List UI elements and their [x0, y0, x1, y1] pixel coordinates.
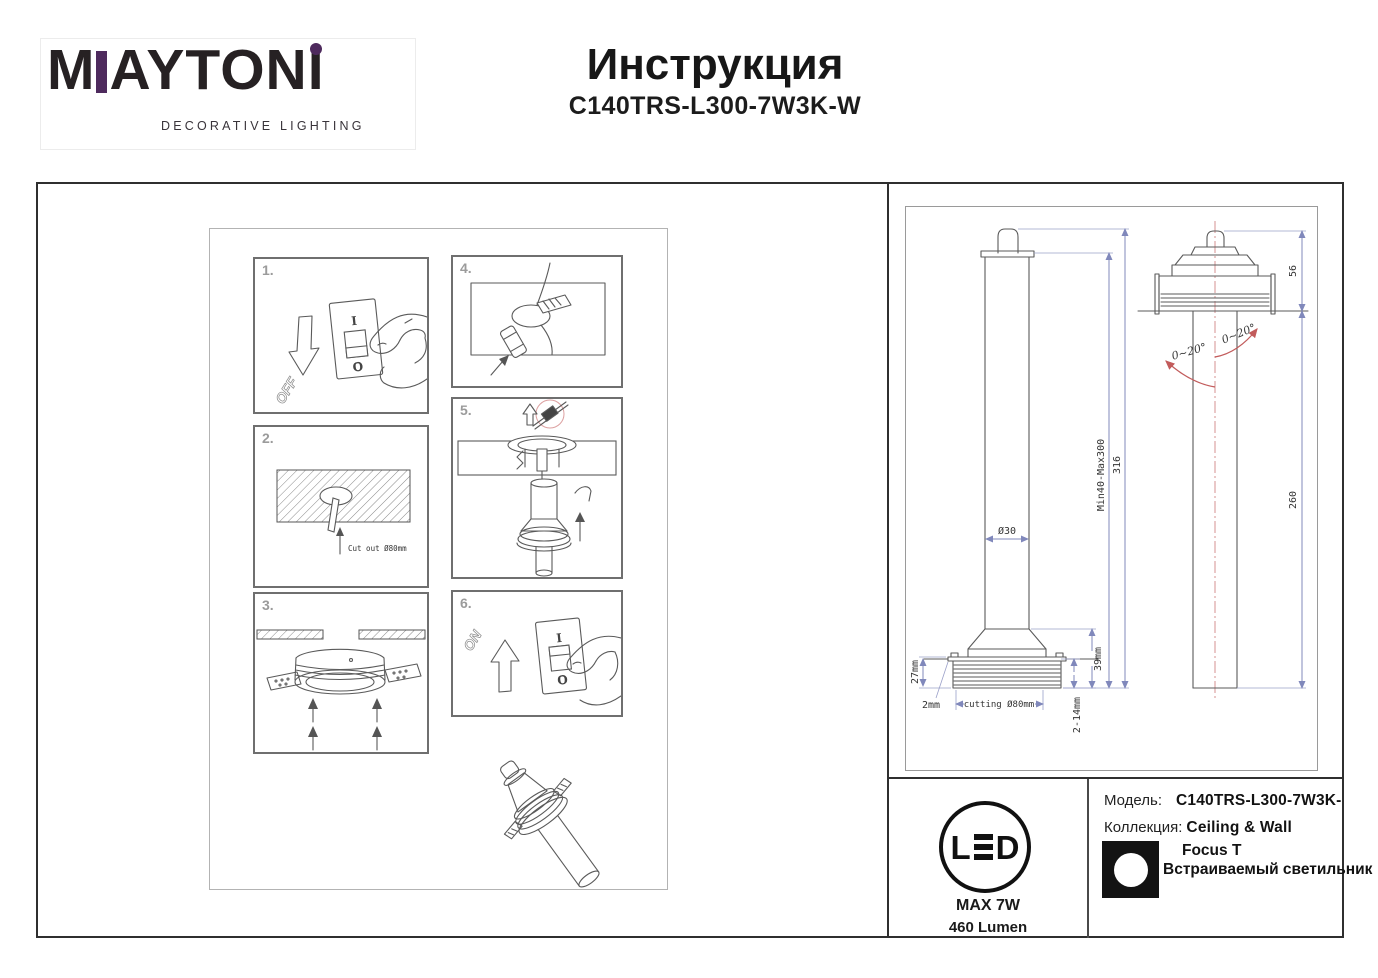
assembled-fixture-illustration: [455, 726, 620, 910]
connector: [499, 325, 527, 358]
switch-plate: I O: [329, 299, 383, 379]
logo-wordmark: MAYTONI: [47, 39, 325, 102]
collection-row: Коллекция: Ceiling & Wall: [1104, 819, 1292, 837]
spotlight-circle-icon: [1114, 853, 1148, 887]
model-label: Модель:: [1104, 792, 1162, 809]
dim-trim-label: 2mm: [922, 700, 940, 711]
cut-out-label: Cut out Ø80mm: [348, 544, 407, 553]
small-up-arrow: [523, 404, 537, 425]
max-power: MAX 7W: [890, 897, 1086, 915]
vertical-divider: [887, 182, 889, 938]
tilt-left-label: 0~20°: [1170, 340, 1208, 362]
step-5: 5.: [451, 397, 623, 579]
switch-off-mark: O: [352, 359, 364, 374]
on-label: ON: [460, 627, 485, 654]
mounting-ring: [267, 649, 421, 694]
series-name: Focus T: [1182, 842, 1241, 860]
step-6-number: 6.: [460, 595, 472, 611]
maytoni-logo: MAYTONI DECORATIVE LIGHTING: [40, 38, 416, 150]
right-horizontal-divider: [887, 777, 1344, 779]
product-icon: [1102, 841, 1159, 898]
up-arrow-head: [575, 512, 585, 522]
pointer-arrow: [491, 361, 503, 375]
lamp-body: [517, 479, 571, 576]
instruction-sheet: MAYTONI DECORATIVE LIGHTING Инструкция C…: [0, 0, 1378, 978]
technical-drawing: Ø30 27mm 2mm cutting Ø80mm 39mm: [906, 207, 1317, 770]
logo-i-dotted: I: [308, 39, 325, 102]
technical-drawing-frame: Ø30 27mm 2mm cutting Ø80mm 39mm: [905, 206, 1318, 771]
off-label: OFF: [272, 374, 301, 407]
logo-m: M: [47, 39, 95, 102]
step-4: 4.: [451, 255, 623, 388]
step-5-illustration: [453, 399, 621, 577]
led-letter-d: D: [996, 831, 1020, 864]
side-view: 0~20° 0~20°: [1138, 221, 1308, 701]
step-5-number: 5.: [460, 402, 472, 418]
dim-range-label: Min40-Max300: [1096, 439, 1107, 511]
arrow-up-icon: [491, 640, 519, 692]
step-1-number: 1.: [262, 262, 274, 278]
ceiling-right: [359, 630, 425, 639]
dim-diameter-label: Ø30: [998, 525, 1016, 537]
page-title: Инструкция: [500, 40, 930, 90]
tilt-arc-left: [1166, 361, 1215, 387]
dim-ceiling-label: 2-14mm: [1072, 697, 1083, 733]
logo-purple-bar-icon: [96, 51, 107, 93]
model-value: C140TRS-L300-7W3K-: [1176, 792, 1342, 810]
step-3-number: 3.: [262, 597, 274, 613]
dim-above-label: 56: [1288, 265, 1299, 277]
front-view: [924, 229, 1098, 688]
switch-plate: I O: [535, 618, 586, 694]
led-badge: L D: [939, 801, 1031, 893]
side-view-dimensions: 56 260: [1224, 231, 1306, 688]
step-3-illustration: [255, 594, 427, 752]
bent-wire: [575, 487, 591, 501]
title-block: Инструкция C140TRS-L300-7W3K-W: [500, 40, 930, 121]
tilted-lamp: [472, 739, 620, 907]
push-arrows: [308, 698, 382, 750]
dim-depth-label: 27mm: [910, 660, 921, 684]
collection-value: Ceiling & Wall: [1186, 819, 1292, 837]
logo-ayton: AYTON: [109, 39, 307, 102]
tilt-right-label: 0~20°: [1220, 321, 1258, 346]
product-type: Встраиваемый светильник: [1163, 861, 1372, 879]
step-6: 6. ON I O: [451, 590, 623, 717]
step-2-number: 2.: [262, 430, 274, 446]
step-2-illustration: Cut out Ø80mm: [255, 427, 427, 586]
step-4-number: 4.: [460, 260, 472, 276]
step-1-illustration: OFF I O: [255, 259, 427, 412]
ceiling-left: [257, 630, 323, 639]
arrow-down-icon: [289, 316, 319, 375]
dim-below-label: 260: [1288, 491, 1299, 509]
step-6-illustration: ON I O: [453, 592, 621, 715]
footer-vertical-divider: [1087, 779, 1089, 938]
led-e-bars-icon: [974, 834, 993, 860]
dim-total-label: 316: [1112, 456, 1123, 474]
switch-off-mark: O: [557, 672, 569, 687]
wire-lower: [541, 325, 552, 355]
step-2: 2. Cut out Ø80mm: [253, 425, 429, 588]
model-number: C140TRS-L300-7W3K-W: [500, 92, 930, 121]
model-row: Модель: C140TRS-L300-7W3K-: [1104, 792, 1342, 810]
step-1: 1. OFF I O: [253, 257, 429, 414]
wire: [537, 263, 550, 305]
luminous-flux: 460 Lumen: [890, 919, 1086, 936]
led-letter-l: L: [950, 831, 970, 864]
dim-recess-label: 39mm: [1093, 647, 1104, 671]
arrow-up-head: [336, 527, 344, 536]
spring-clip: [537, 295, 571, 313]
step-3: 3.: [253, 592, 429, 754]
step-4-illustration: [453, 257, 621, 386]
collection-label: Коллекция:: [1104, 819, 1182, 836]
logo-subtitle: DECORATIVE LIGHTING: [161, 119, 365, 133]
dim-cutout-label: cutting Ø80mm: [964, 699, 1034, 710]
